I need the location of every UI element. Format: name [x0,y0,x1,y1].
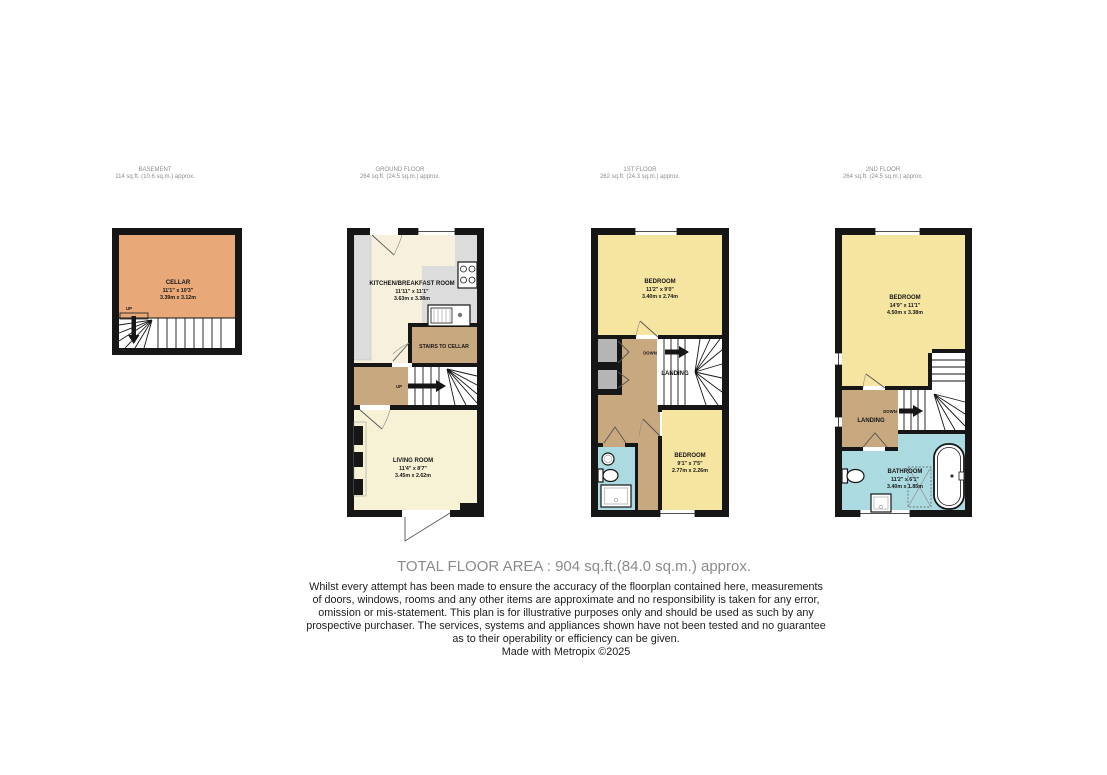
bedroom-rear [662,410,722,510]
toilet-icon [598,469,618,482]
room-dims-metric: 3.45m x 2.62m [395,473,431,479]
room-dims-imperial: 11'11" x 11'1" [395,289,429,295]
room-dims-metric: 3.39m x 3.12m [160,295,196,301]
room-dims-metric: 3.40m x 2.74m [642,294,678,300]
floor-area: 262 sq.ft. (24.3 sq.m.) approx. [565,174,715,181]
floor-area: 114 sq.ft. (10.6 sq.m.) approx. [80,174,230,181]
disclaimer: Whilst every attempt has been made to en… [266,581,866,658]
room-name: BEDROOM [674,453,705,459]
hob-icon [458,262,477,288]
basement-svg: UP CELLAR 11'1" x 10'3" 3.39m x 3.12m [112,228,242,355]
sink-icon [871,494,891,512]
room-dims-metric: 3.63m x 3.38m [394,296,430,302]
room-dims-imperial: 9'1" x 7'5" [677,461,703,467]
room-name: KITCHEN/BREAKFAST ROOM [369,281,454,287]
sink-icon [428,305,470,326]
floorplan-page: BASEMENT 114 sq.ft. (10.6 sq.m.) approx.… [0,0,1107,775]
room-dims-metric: 3.40m x 1.85m [887,484,923,490]
room-dims-imperial: 11'2" x 6'1" [891,477,919,483]
counter [354,235,371,360]
staircase [932,353,965,390]
room-name: BATHROOM [888,469,923,475]
bathroom-label: BATHROOM 11'2" x 6'1" 3.40m x 1.85m [887,469,923,490]
second-floor-header: 2ND FLOOR 264 sq.ft. (24.5 sq.m.) approx… [808,167,958,180]
basement-header: BASEMENT 114 sq.ft. (10.6 sq.m.) approx. [80,167,230,180]
first-floor-plan: DOWN LANDING [591,228,729,528]
up-label: UP [126,306,132,311]
disclaimer-line: prospective purchaser. The services, sys… [266,620,866,633]
room-name: BEDROOM [889,295,920,301]
landing [598,392,620,447]
room-name: LIVING ROOM [393,458,433,464]
stairs-to-cellar-label: STAIRS TO CELLAR [419,344,469,350]
bedroom-front-label: BEDROOM 11'2" x 9'0" 3.40m x 2.74m [642,279,678,300]
room-dims-metric: 2.77m x 2.26m [672,468,708,474]
up-label: UP [396,384,402,389]
room-dims-imperial: 14'9" x 11'1" [890,303,921,309]
second-floor-svg: DOWN LANDING [835,228,972,523]
room-dims-imperial: 11'4" x 8'7" [399,466,427,472]
room-name: CELLAR [166,280,191,286]
chimney-breast [354,422,366,496]
floor-area: 264 sq.ft. (24.5 sq.m.) approx. [808,174,958,181]
ground-floor-header: GROUND FLOOR 264 sq.ft. (24.5 sq.m.) app… [325,167,475,180]
down-label: DOWN [643,351,657,356]
bedroom-label: BEDROOM 14'9" x 11'1" 4.50m x 3.38m [887,295,923,316]
disclaimer-line: omission or mis-statement. This plan is … [266,607,866,620]
front-door [405,513,450,541]
room-name: BEDROOM [644,279,675,285]
toilet-icon [842,469,864,483]
room-dims-metric: 4.50m x 3.38m [887,310,923,316]
shower-tray-icon [601,485,631,507]
metropix-credit: Made with Metropix ©2025 [266,646,866,659]
bedroom-front [598,235,722,335]
landing-label: LANDING [661,371,689,377]
ground-floor-svg: UP KITCHEN/BREAKFAST ROOM 11'11" x 11'1"… [347,228,484,548]
room-dims-imperial: 11'1" x 10'3" [163,288,194,294]
door-opening [402,510,450,517]
door-opening [370,228,398,235]
ground-floor-plan: UP KITCHEN/BREAKFAST ROOM 11'11" x 11'1"… [347,228,484,553]
first-floor-header: 1ST FLOOR 262 sq.ft. (24.3 sq.m.) approx… [565,167,715,180]
landing-label: LANDING [857,418,885,424]
down-label: DOWN [883,409,897,414]
disclaimer-line: as to their operability or efficiency ca… [266,633,866,646]
landing [638,447,658,510]
disclaimer-line: Whilst every attempt has been made to en… [266,581,866,594]
total-floor-area: TOTAL FLOOR AREA : 904 sq.ft.(84.0 sq.m.… [397,558,751,575]
second-floor-plan: DOWN LANDING [835,228,972,528]
bathtub-icon [934,444,964,509]
floor-area: 264 sq.ft. (24.5 sq.m.) approx. [325,174,475,181]
basement-plan: UP CELLAR 11'1" x 10'3" 3.39m x 3.12m [112,228,242,360]
disclaimer-line: of doors, windows, rooms and any other i… [266,594,866,607]
first-floor-svg: DOWN LANDING [591,228,729,523]
room-dims-imperial: 11'2" x 9'0" [646,287,674,293]
basin-icon [602,453,614,465]
